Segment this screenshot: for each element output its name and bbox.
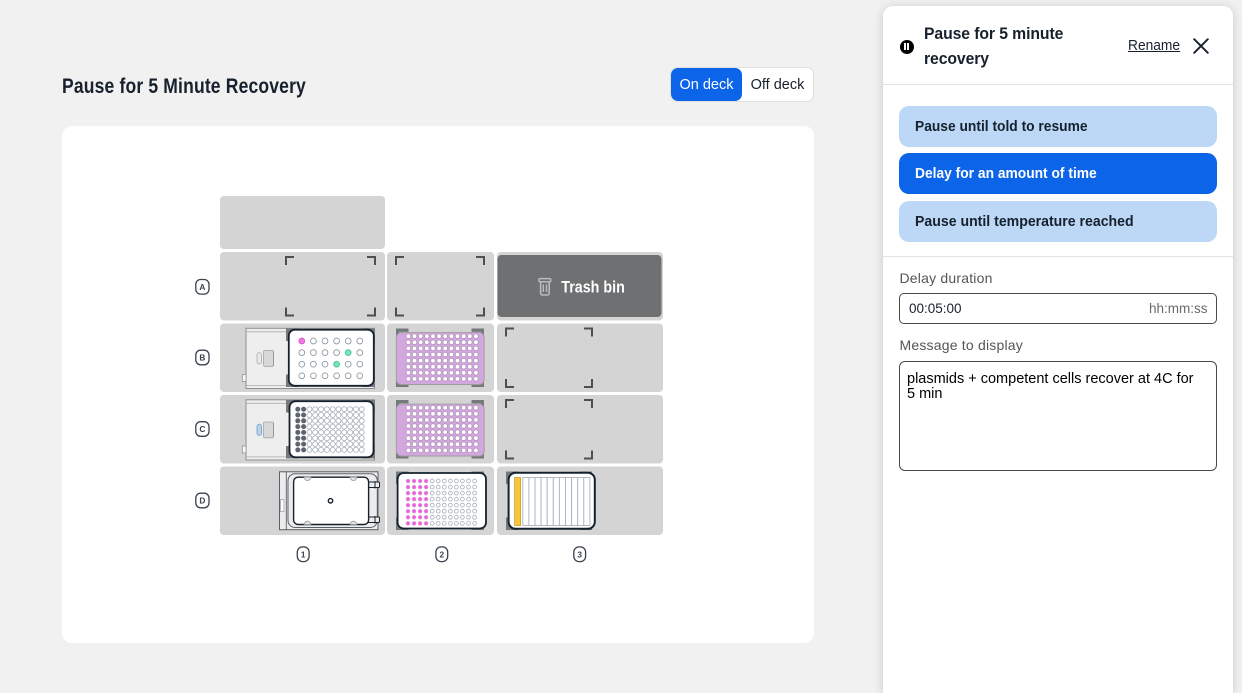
svg-text:Trash bin: Trash bin bbox=[561, 278, 625, 296]
svg-text:2: 2 bbox=[439, 549, 444, 559]
svg-text:D: D bbox=[199, 496, 205, 506]
svg-text:A: A bbox=[199, 282, 205, 292]
svg-text:1: 1 bbox=[301, 549, 306, 559]
svg-text:C: C bbox=[199, 424, 205, 434]
svg-text:B: B bbox=[199, 353, 205, 363]
svg-text:3: 3 bbox=[577, 549, 582, 559]
